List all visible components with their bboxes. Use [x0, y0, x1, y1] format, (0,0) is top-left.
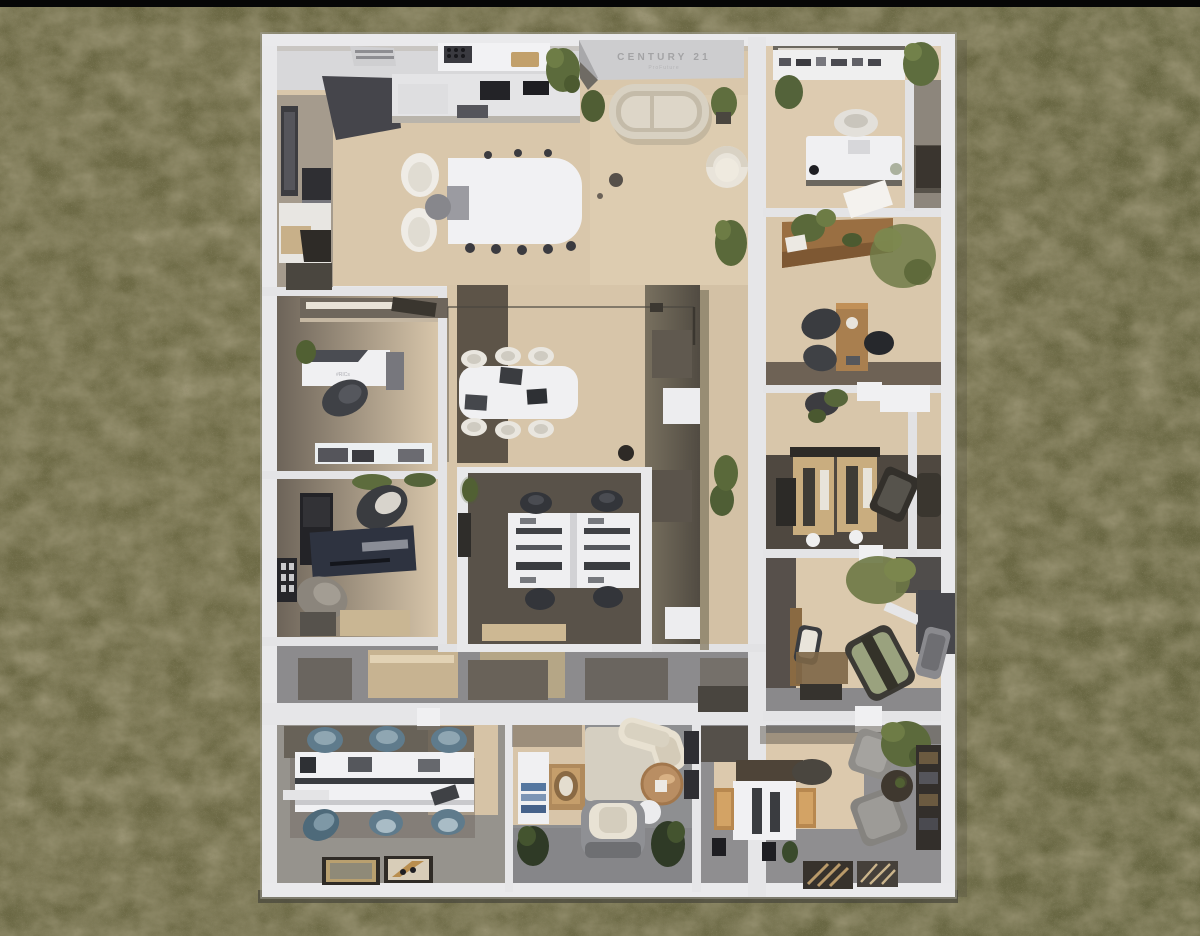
svg-text:ProFuture: ProFuture	[648, 65, 679, 71]
svg-text:CENTURY 21: CENTURY 21	[617, 52, 711, 63]
svg-text:#RICs: #RICs	[336, 372, 350, 378]
